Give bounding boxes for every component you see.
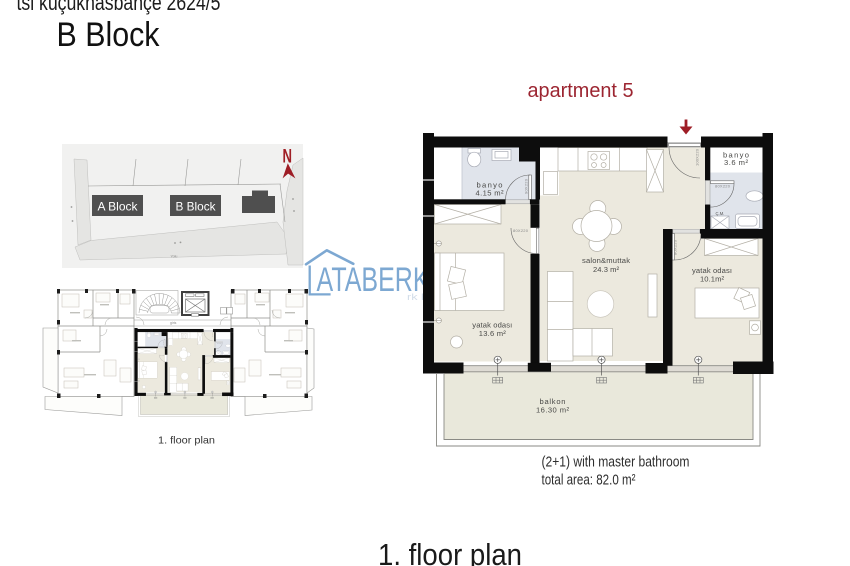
svg-text:3.6 m²: 3.6 m²	[724, 158, 748, 167]
svg-text:balkon: balkon	[540, 397, 566, 406]
svg-text:B Block: B Block	[57, 16, 161, 54]
svg-text:1. floor plan: 1. floor plan	[378, 537, 522, 566]
svg-text:apartment 5: apartment 5	[528, 79, 634, 102]
svg-text:4.15 m²: 4.15 m²	[476, 188, 504, 197]
svg-text:yatak odası: yatak odası	[692, 266, 732, 275]
svg-text:salon&muttak: salon&muttak	[582, 256, 630, 265]
svg-text:giris: giris	[170, 321, 177, 325]
svg-text:A Block: A Block	[98, 200, 139, 214]
svg-text:Yolu: Yolu	[171, 255, 178, 259]
svg-text:yatak odası: yatak odası	[472, 320, 512, 329]
svg-text:tsi küçükhasbançe 2624/5: tsi küçükhasbançe 2624/5	[17, 0, 221, 15]
svg-text:24.3 m²: 24.3 m²	[593, 265, 619, 274]
svg-text:(2+1) with master bathroom: (2+1) with master bathroom	[542, 454, 690, 471]
svg-text:13.6 m²: 13.6 m²	[479, 329, 506, 338]
svg-text:16.30 m²: 16.30 m²	[536, 406, 569, 415]
svg-text:1. floor plan: 1. floor plan	[158, 435, 215, 447]
svg-text:B Block: B Block	[176, 200, 217, 214]
svg-text:total area: 82.0 m²: total area: 82.0 m²	[542, 472, 636, 489]
svg-text:10.1m²: 10.1m²	[700, 275, 724, 284]
svg-text:N: N	[283, 145, 293, 167]
